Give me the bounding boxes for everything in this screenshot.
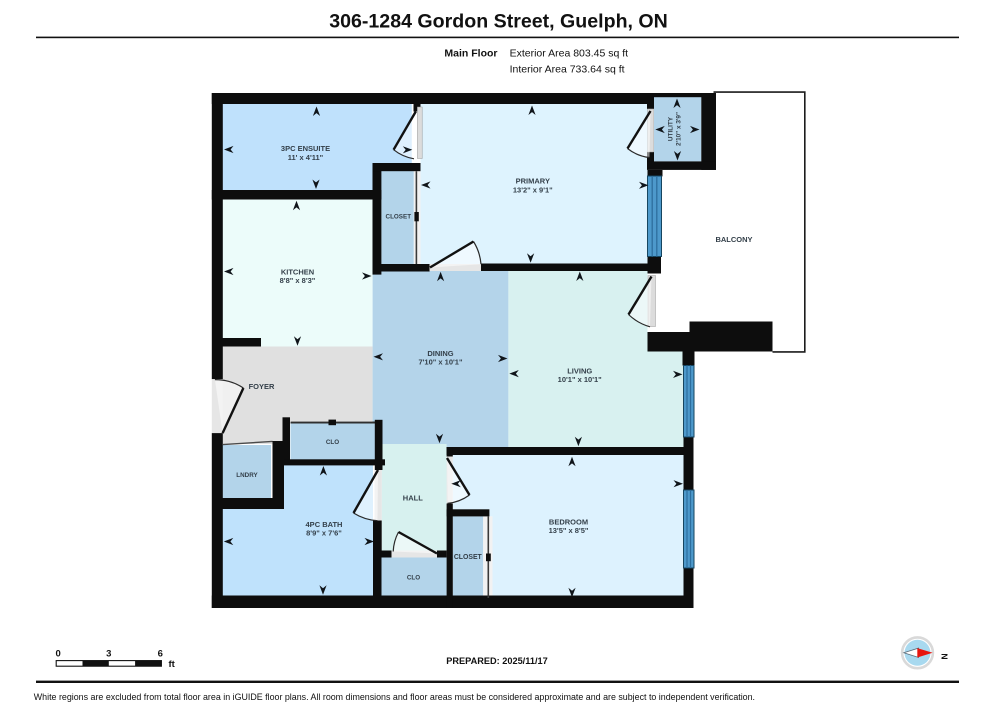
svg-text:10'1" x 10'1": 10'1" x 10'1" — [558, 375, 602, 384]
svg-text:6: 6 — [158, 648, 163, 659]
svg-text:N: N — [940, 653, 950, 659]
svg-text:DINING: DINING — [427, 349, 453, 358]
svg-text:FOYER: FOYER — [249, 382, 275, 391]
svg-text:13'2" x 9'1": 13'2" x 9'1" — [513, 185, 553, 194]
svg-text:CLO: CLO — [326, 439, 339, 446]
svg-text:PREPARED: 2025/11/17: PREPARED: 2025/11/17 — [446, 656, 547, 666]
svg-text:ft: ft — [169, 659, 176, 670]
svg-text:2'10" x 3'9": 2'10" x 3'9" — [676, 112, 683, 146]
svg-text:PRIMARY: PRIMARY — [516, 177, 550, 186]
svg-text:8'9" x 7'6": 8'9" x 7'6" — [306, 529, 342, 538]
svg-text:CLOSET: CLOSET — [386, 214, 412, 221]
svg-text:8'8" x 8'3": 8'8" x 8'3" — [280, 276, 316, 285]
svg-text:0: 0 — [56, 648, 61, 659]
svg-text:13'5" x 8'5": 13'5" x 8'5" — [549, 526, 589, 535]
svg-text:KITCHEN: KITCHEN — [281, 267, 314, 276]
svg-text:306-1284 Gordon Street, Guelph: 306-1284 Gordon Street, Guelph, ON — [329, 10, 668, 32]
svg-text:Exterior Area 803.45 sq ft: Exterior Area 803.45 sq ft — [510, 47, 629, 59]
svg-text:CLOSET: CLOSET — [454, 554, 483, 561]
svg-text:CLO: CLO — [407, 575, 420, 582]
svg-text:7'10" x 10'1": 7'10" x 10'1" — [418, 358, 462, 367]
svg-text:HALL: HALL — [403, 493, 423, 502]
svg-text:BEDROOM: BEDROOM — [549, 517, 588, 526]
svg-text:BALCONY: BALCONY — [715, 235, 752, 244]
svg-text:3: 3 — [106, 648, 111, 659]
svg-text:3PC ENSUITE: 3PC ENSUITE — [281, 144, 330, 153]
svg-text:LNDRY: LNDRY — [236, 472, 258, 479]
svg-text:11' x 4'11": 11' x 4'11" — [288, 153, 324, 162]
svg-text:LIVING: LIVING — [567, 366, 592, 375]
svg-text:Interior Area 733.64 sq ft: Interior Area 733.64 sq ft — [510, 63, 625, 75]
svg-text:Main Floor: Main Floor — [444, 47, 497, 59]
svg-text:UTILITY: UTILITY — [667, 116, 674, 141]
svg-text:4PC BATH: 4PC BATH — [306, 520, 343, 529]
svg-text:White regions are excluded fro: White regions are excluded from total fl… — [34, 692, 755, 702]
